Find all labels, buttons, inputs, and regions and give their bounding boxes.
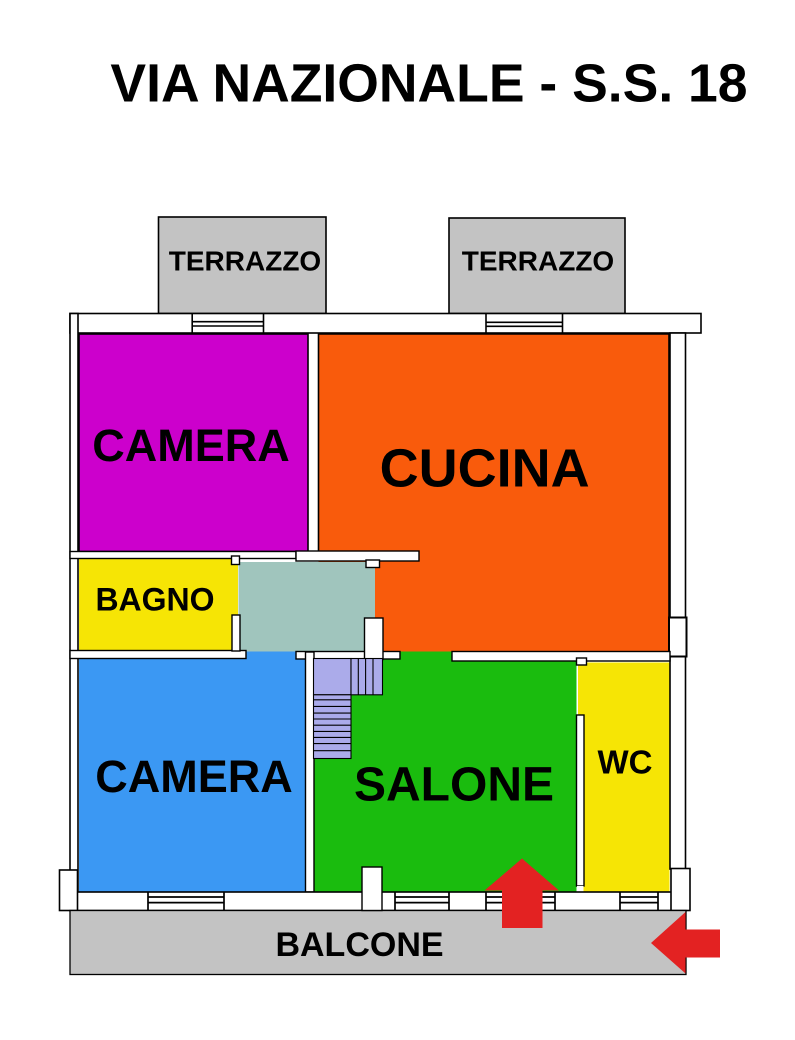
svg-text:TERRAZZO: TERRAZZO xyxy=(462,246,614,277)
svg-text:CAMERA: CAMERA xyxy=(92,420,290,471)
svg-text:SALONE: SALONE xyxy=(354,759,554,812)
svg-text:CAMERA: CAMERA xyxy=(95,751,293,802)
svg-text:TERRAZZO: TERRAZZO xyxy=(169,246,321,277)
svg-text:CUCINA: CUCINA xyxy=(380,439,590,499)
svg-text:VIA NAZIONALE - S.S. 18: VIA NAZIONALE - S.S. 18 xyxy=(110,55,747,114)
svg-text:BALCONE: BALCONE xyxy=(275,926,443,964)
svg-text:WC: WC xyxy=(598,744,653,781)
svg-text:BAGNO: BAGNO xyxy=(95,582,214,618)
